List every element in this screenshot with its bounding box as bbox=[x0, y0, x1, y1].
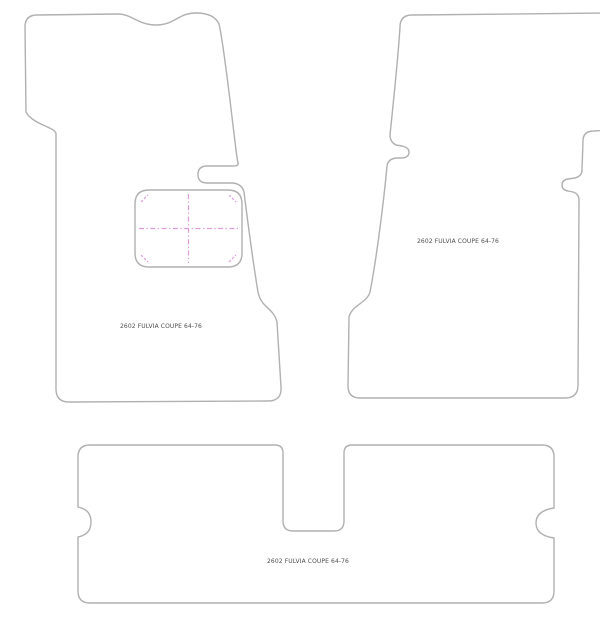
front-right-mat-outline bbox=[348, 13, 600, 398]
rear-mat: 2602 FULVIA COUPE 64-76 bbox=[78, 445, 554, 603]
floor-mat-pattern-drawing: 2602 FULVIA COUPE 64-76 2602 FULVIA COUP… bbox=[0, 0, 600, 619]
front-right-mat: 2602 FULVIA COUPE 64-76 bbox=[348, 13, 600, 398]
front-left-mat-label: 2602 FULVIA COUPE 64-76 bbox=[120, 323, 202, 330]
rear-mat-outline bbox=[78, 445, 554, 603]
front-left-mat: 2602 FULVIA COUPE 64-76 bbox=[25, 13, 281, 402]
rear-mat-label: 2602 FULVIA COUPE 64-76 bbox=[267, 558, 349, 565]
front-right-mat-label: 2602 FULVIA COUPE 64-76 bbox=[417, 238, 499, 245]
heel-pad-center-cross bbox=[139, 194, 238, 263]
floor-mats-pattern-svg: 2602 FULVIA COUPE 64-76 2602 FULVIA COUP… bbox=[0, 0, 600, 619]
